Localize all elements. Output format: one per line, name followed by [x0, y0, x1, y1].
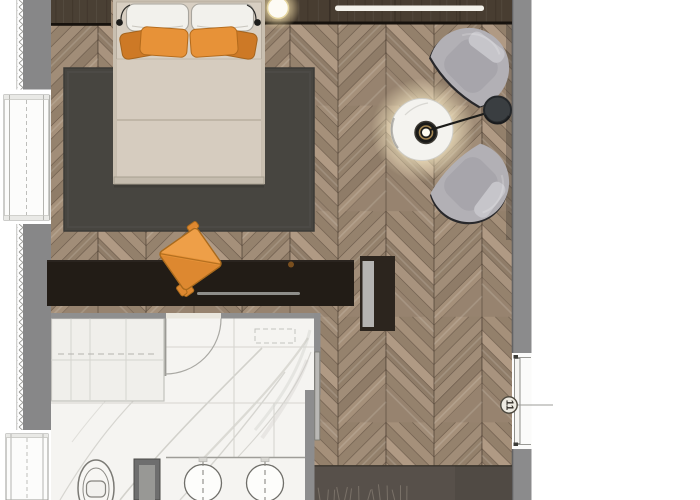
svg-text:11: 11 — [504, 400, 515, 411]
